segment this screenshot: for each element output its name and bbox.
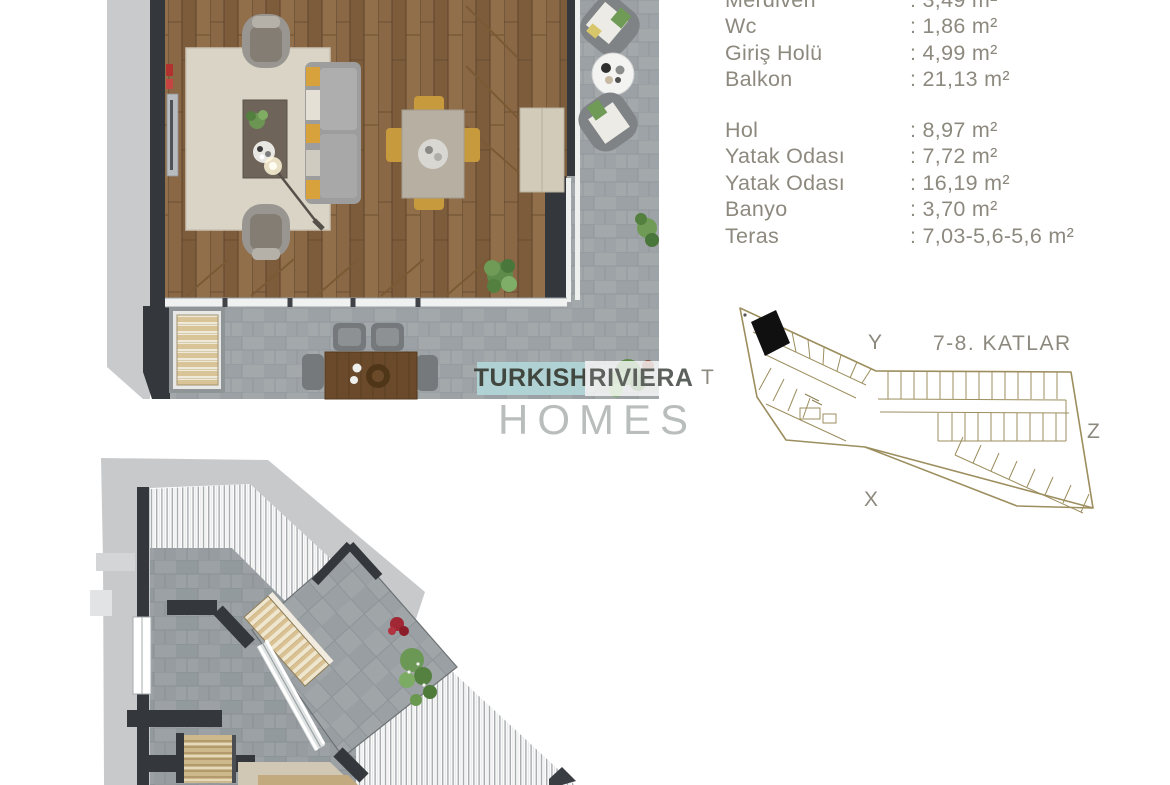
stairs (176, 733, 236, 783)
sideboard (520, 108, 564, 192)
watermark-word: TURKISH (474, 364, 589, 393)
terrace-bench (169, 307, 225, 393)
key-plan: Y 7-8. KATLAR T Z X (698, 295, 1112, 525)
area-row: Giriş Holü : 4,99 m² (725, 40, 1105, 66)
room-area-value: : 4,99 m² (910, 40, 998, 66)
room-area-value: : 7,03-5,6-5,6 m² (910, 223, 1074, 249)
room-area-value: : 3,70 m² (910, 196, 998, 222)
window (133, 617, 151, 694)
watermark-homes: HOMES (498, 396, 674, 444)
floor-plan-page: Y 7-8. KATLAR T Z X Merdiven : 3,49 m² W… (0, 0, 1170, 785)
area-row: Merdiven : 3,49 m² (725, 0, 1105, 13)
room-label: Teras (725, 223, 910, 249)
area-group-lower: Hol : 8,97 m² Yatak Odası : 7,72 m² Yata… (725, 117, 1105, 249)
axis-label-z: Z (1087, 420, 1100, 443)
armchair-top (242, 14, 290, 68)
area-row: Wc : 1,86 m² (725, 13, 1105, 39)
tv-console (167, 94, 178, 176)
key-plan-title: 7-8. KATLAR (933, 332, 1072, 355)
room-label: Wc (725, 13, 910, 39)
area-row: Balkon : 21,13 m² (725, 66, 1105, 92)
room-area-value: : 1,86 m² (910, 13, 998, 39)
watermark-riviera: RIVIERA (585, 361, 697, 396)
area-row: Yatak Odası : 7,72 m² (725, 143, 1105, 169)
area-row: Teras : 7,03-5,6-5,6 m² (725, 223, 1105, 249)
room-label: Giriş Holü (725, 40, 910, 66)
room-area-value: : 3,49 m² (910, 0, 998, 13)
room-area-value: : 7,72 m² (910, 143, 998, 169)
area-group-upper: Merdiven : 3,49 m² Wc : 1,86 m² Giriş Ho… (725, 0, 1105, 93)
room-area-value: : 8,97 m² (910, 117, 998, 143)
room-label: Yatak Odası (725, 170, 910, 196)
room-label: Balkon (725, 66, 910, 92)
watermark-word: RIVIERA (589, 364, 694, 393)
room-label: Merdiven (725, 0, 910, 13)
balcony-side-table (592, 53, 634, 95)
area-row: Hol : 8,97 m² (725, 117, 1105, 143)
area-row: Banyo : 3,70 m² (725, 196, 1105, 222)
highlighted-unit (751, 310, 790, 356)
room-label: Banyo (725, 196, 910, 222)
lower-floor-plan (88, 441, 660, 785)
armchair-bottom (242, 204, 290, 260)
room-area-value: : 21,13 m² (910, 66, 1010, 92)
unit-marker-dot (743, 313, 746, 316)
watermark-turkish: TURKISH (477, 362, 585, 395)
sofa (305, 62, 361, 204)
room-area-value: : 16,19 m² (910, 170, 1010, 196)
room-label: Yatak Odası (725, 143, 910, 169)
upper-floor-plan (103, 0, 661, 401)
axis-label-t: T (701, 366, 714, 389)
room-label: Hol (725, 117, 910, 143)
axis-label-y: Y (868, 331, 882, 354)
axis-label-x: X (864, 488, 878, 511)
area-row: Yatak Odası : 16,19 m² (725, 170, 1105, 196)
